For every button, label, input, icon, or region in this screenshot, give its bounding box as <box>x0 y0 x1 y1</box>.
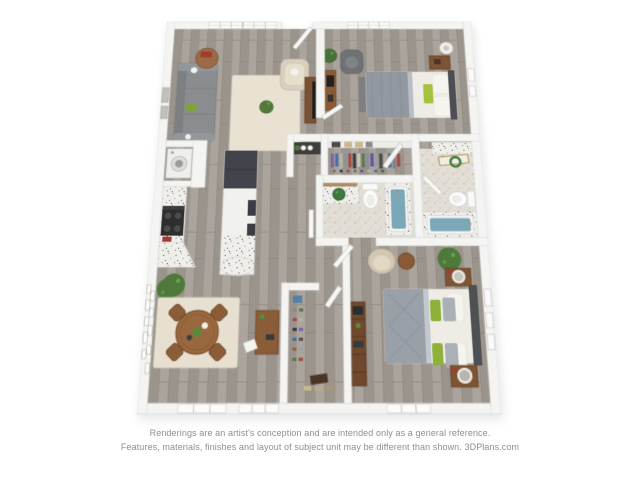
wall-closet1-bottom <box>321 175 420 183</box>
red-books <box>200 51 212 57</box>
basket <box>366 142 373 148</box>
bed-1 <box>358 70 457 119</box>
bedroom-1-wall-frame <box>469 86 476 97</box>
cream-accent-chair <box>280 59 309 90</box>
pillow <box>433 96 450 116</box>
floor-lamp <box>439 42 453 54</box>
dining-window-2 <box>239 404 279 413</box>
wall-baths-bottom-right <box>376 238 488 246</box>
living-wall-frame <box>160 106 168 119</box>
canister <box>301 145 306 150</box>
bathroom-1-door <box>309 210 314 238</box>
range <box>161 206 185 236</box>
bedroom-2-window <box>387 404 431 413</box>
tub-water <box>391 189 406 228</box>
nightstand-2b <box>450 365 478 387</box>
bathtub-1 <box>384 183 412 236</box>
green-pillow <box>432 343 444 365</box>
living-room-window <box>209 22 277 28</box>
toilet-2 <box>448 191 475 207</box>
bedroom-2-wall-frame <box>486 313 494 328</box>
living-wall-frame <box>162 88 170 103</box>
wall-column <box>191 140 207 187</box>
wall-pantry-left <box>286 134 293 177</box>
tub-water <box>430 218 471 231</box>
gray-pillow <box>442 298 456 322</box>
monitor <box>327 75 335 86</box>
disclaimer-line-1: Renderings are an artist's conception an… <box>0 427 640 441</box>
granite-vanity <box>432 142 473 154</box>
wall-closet2-left <box>280 283 289 403</box>
bedroom-1-wall-frame <box>468 69 475 82</box>
bookshelf <box>350 302 366 386</box>
office-chair <box>340 50 363 74</box>
basket <box>355 142 363 148</box>
pantry <box>294 142 321 154</box>
wall-living-bedroom1 <box>316 29 325 118</box>
tv-console <box>305 77 317 123</box>
accent-chair-2 <box>368 249 395 274</box>
oven-panel <box>248 200 257 216</box>
bedroom-2-wall-frame <box>487 334 495 349</box>
gray-pillow <box>445 343 459 368</box>
folded-clothes <box>293 296 302 303</box>
floor-plan-render <box>136 22 501 419</box>
laundry-washer <box>166 149 192 178</box>
toilet-1 <box>363 184 379 209</box>
pillow <box>432 75 449 94</box>
page: { "disclaimer": { "line1": "Renderings a… <box>0 0 640 480</box>
basket <box>344 142 352 148</box>
dishwasher-panel <box>247 224 256 237</box>
bathtub-2 <box>422 212 478 238</box>
disclaimer: Renderings are an artist's conception an… <box>0 427 640 454</box>
red-books-counter <box>162 237 172 242</box>
wall-bedroom1-bottom <box>287 134 480 141</box>
nightstand-1 <box>429 56 450 70</box>
bedroom-1-window <box>347 22 389 28</box>
wall-pantry-right <box>321 134 328 177</box>
bedroom-2-wall-frame <box>484 289 492 306</box>
wall-bath1-left <box>316 175 323 246</box>
storage-box <box>332 142 341 148</box>
canister <box>308 145 313 150</box>
nightstand-2a <box>445 268 472 286</box>
bench <box>359 77 366 112</box>
disclaimer-line-2: Features, materials, finishes and layout… <box>0 441 640 455</box>
round-side-table-2 <box>398 253 415 269</box>
desk <box>325 70 337 110</box>
vessel-sink <box>333 188 345 200</box>
tv-screen <box>312 81 315 118</box>
green-pillow <box>423 84 434 103</box>
wall-baths-bottom-left <box>316 238 349 246</box>
kitchen-island <box>220 151 258 276</box>
bed-2 <box>383 285 483 372</box>
sectional-sofa <box>173 63 218 141</box>
green-pillow <box>430 300 442 321</box>
dining-window-1 <box>177 404 226 413</box>
floor-plan-svg <box>136 22 501 419</box>
